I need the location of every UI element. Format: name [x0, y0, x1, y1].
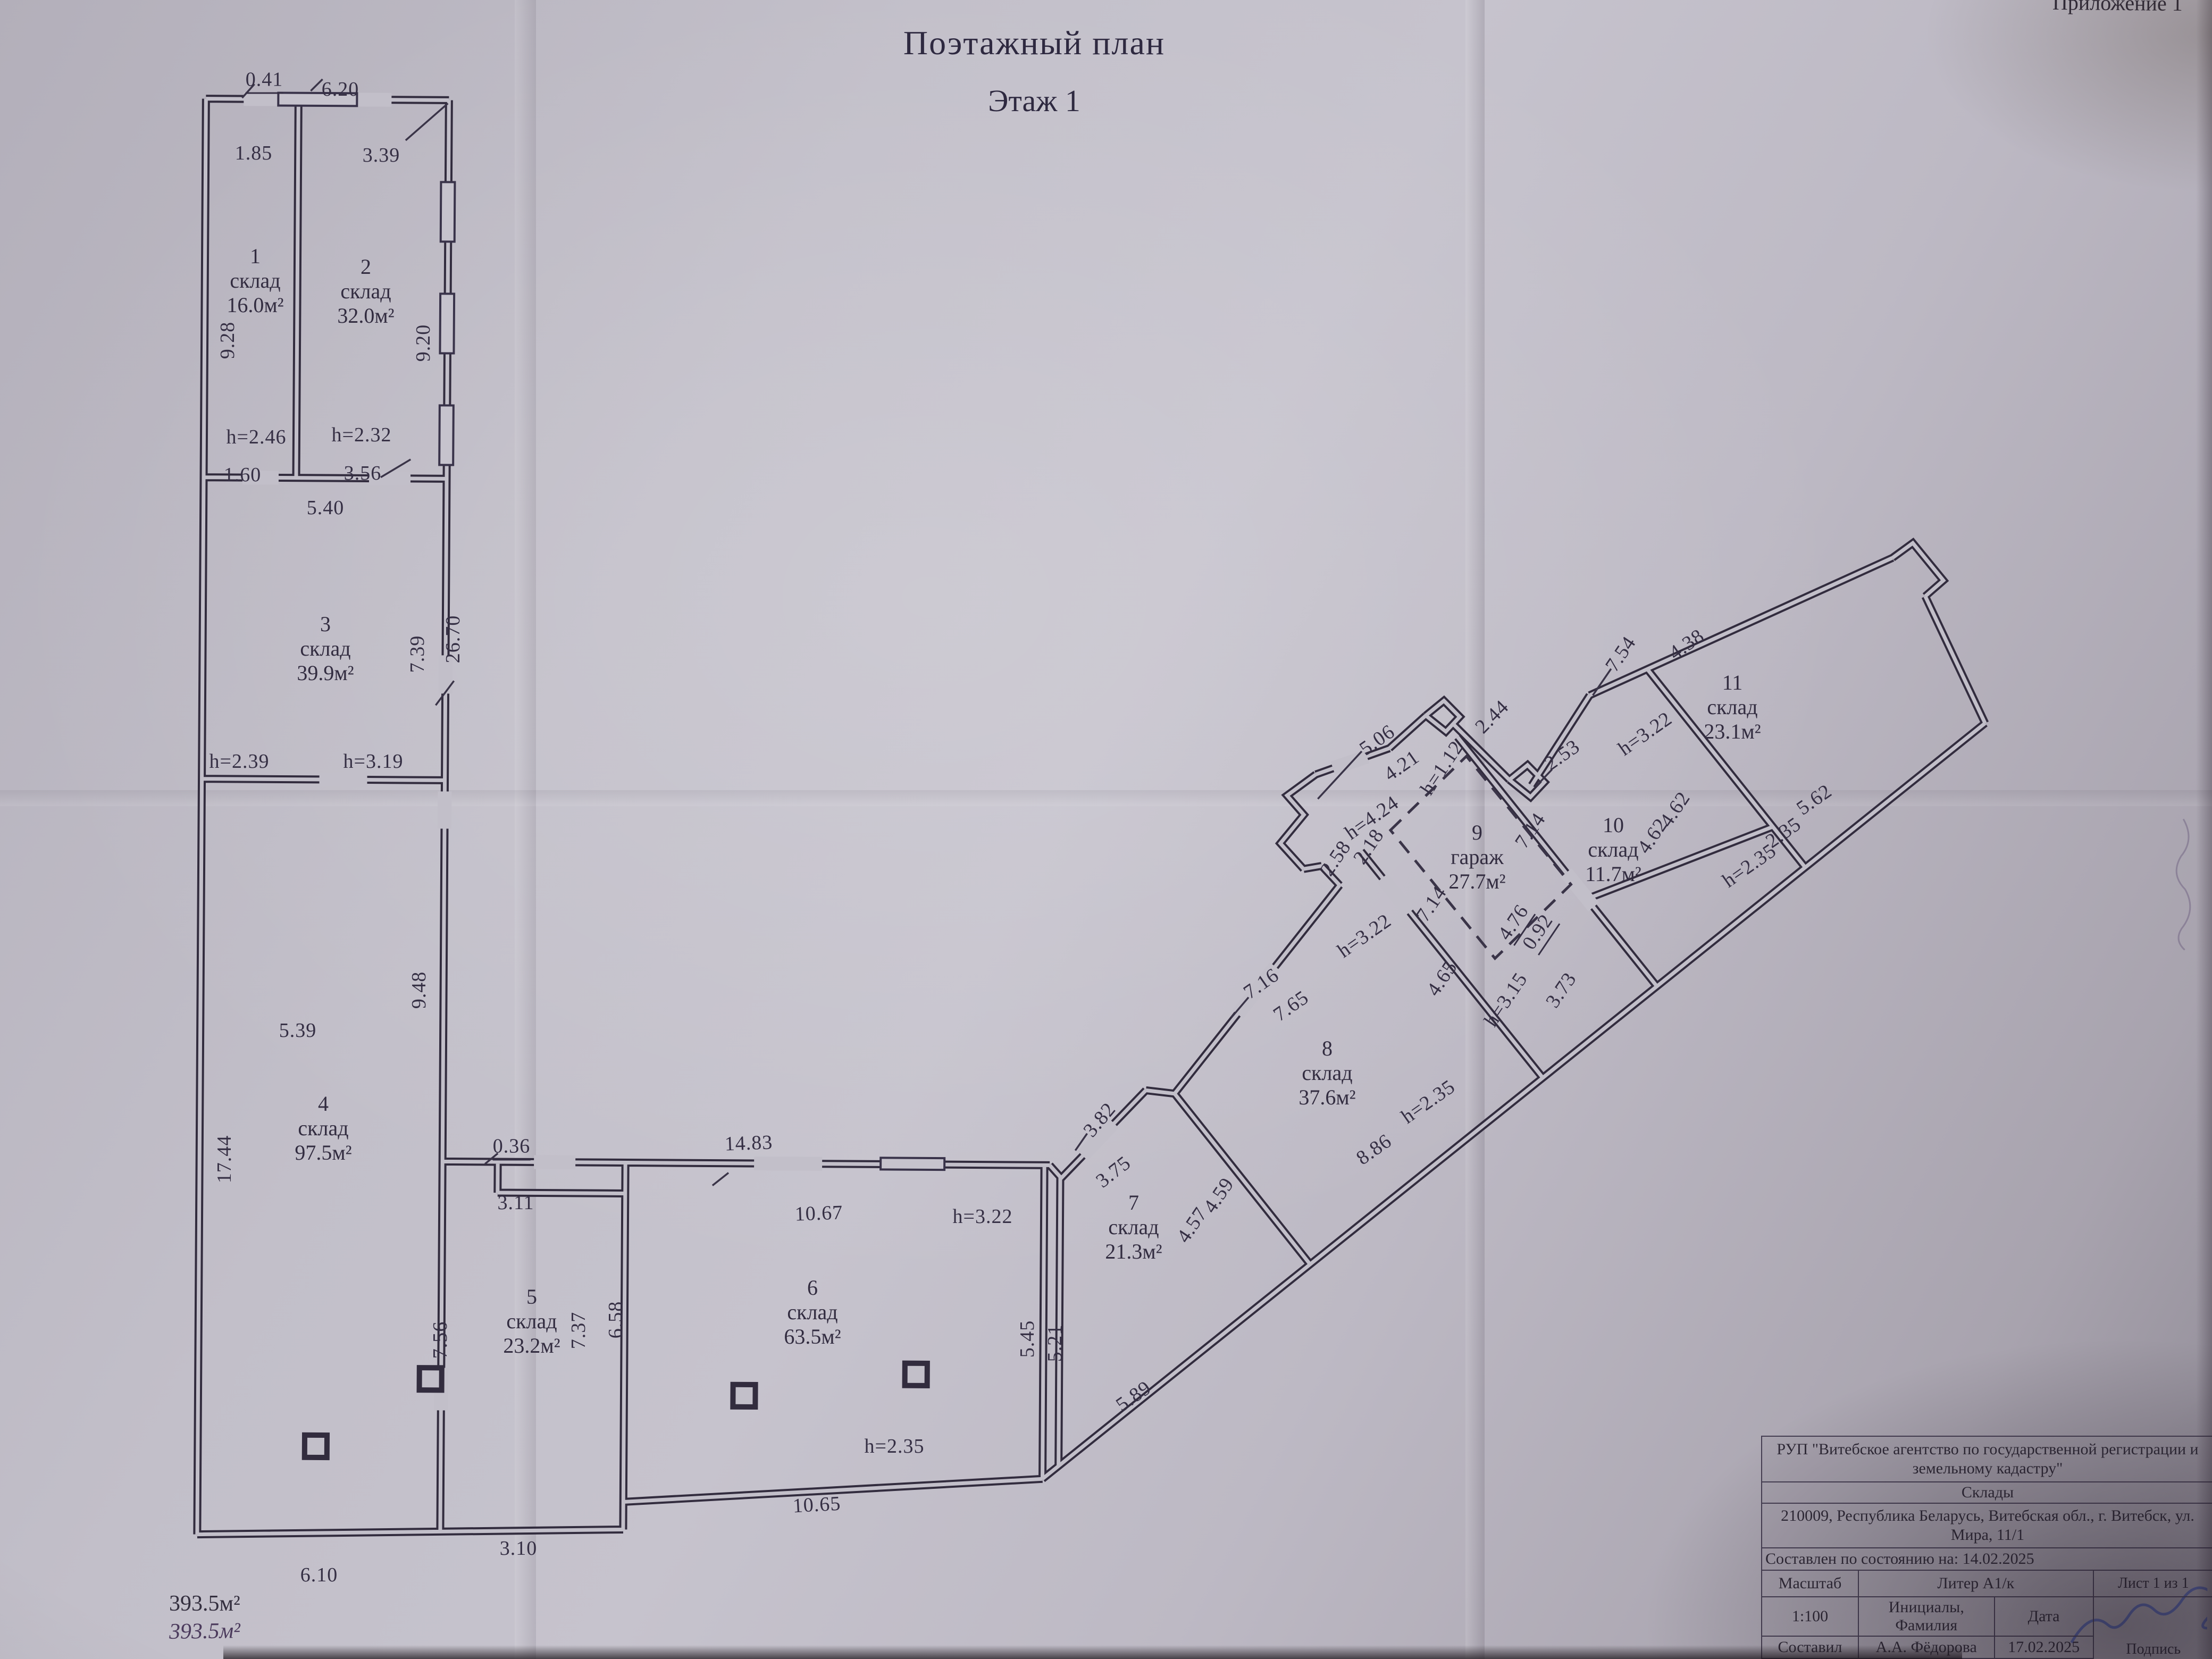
table-cell-address: 210009, Республика Беларусь, Витебская о… [1762, 1503, 2212, 1548]
total-area-block: 393.5м² 393.5м² [169, 1590, 240, 1645]
desk-edge-shadow [223, 1645, 1962, 1659]
column-icon [305, 1435, 327, 1457]
room-label: 2склад32.0м² [337, 255, 394, 328]
table-cell-liter: Литер А1/к [1858, 1570, 2093, 1597]
room-label-line: 7 [1105, 1191, 1162, 1215]
walls-layer [197, 99, 1989, 1545]
room-label-line: 23.1м² [1704, 719, 1761, 744]
dim-label: 9.28 [216, 322, 239, 359]
room-label: 4склад97.5м² [295, 1092, 351, 1165]
room-label-line: 37.6м² [1298, 1085, 1355, 1110]
dim-label: h=2.32 [332, 423, 392, 447]
room-label-line: 6 [784, 1276, 841, 1300]
room-label-line: 2 [337, 255, 394, 279]
room-label: 11склад23.1м² [1704, 671, 1761, 744]
dim-label: 1.85 [235, 141, 273, 165]
room-label-line: склад [1298, 1061, 1355, 1085]
room-label-line: 9 [1448, 820, 1505, 845]
room-label-line: склад [297, 636, 354, 661]
dim-label: 26.70 [441, 615, 465, 664]
total-area-printed: 393.5м² [169, 1590, 240, 1618]
room-label: 5склад23.2м² [503, 1285, 560, 1358]
room-label-line: 23.2м² [503, 1334, 560, 1358]
window-icon [441, 182, 455, 241]
dim-label: 3.11 [497, 1191, 534, 1214]
room-label-line: 27.7м² [1448, 869, 1505, 894]
room-label-line: 63.5м² [784, 1325, 841, 1349]
dim-label: 5.40 [307, 496, 345, 520]
room-label: 8склад37.6м² [1298, 1036, 1355, 1110]
dim-label: 10.65 [792, 1492, 842, 1518]
dim-label: 17.44 [213, 1135, 236, 1184]
room-label-line: склад [227, 269, 283, 293]
column-icon [420, 1368, 442, 1390]
table-cell-signature: Подпись проверяющего [2093, 1597, 2212, 1659]
dim-label: 7.37 [567, 1312, 590, 1350]
dim-label: h=3.22 [953, 1205, 1013, 1228]
room-label: 1склад16.0м² [227, 244, 283, 317]
table-cell-object: Склады [1762, 1482, 2212, 1503]
dim-label: 6.58 [604, 1301, 627, 1339]
dim-label: h=2.39 [210, 750, 270, 773]
room-label-line: склад [1105, 1215, 1162, 1239]
floorplan-photo: Приложение 1 Поэтажный план Этаж 1 [0, 0, 2212, 1659]
dim-label: 5.45 [1016, 1320, 1039, 1358]
dim-label: h=2.46 [227, 425, 287, 449]
room-label: 7склад21.3м² [1105, 1191, 1162, 1264]
room-label-line: 39.9м² [297, 661, 354, 685]
total-area-handwritten: 393.5м² [169, 1617, 241, 1646]
table-cell-initials-header: Инициалы, Фамилия [1858, 1597, 1995, 1636]
dim-label: 7.56 [429, 1321, 452, 1359]
room-label: 9гараж27.7м² [1448, 820, 1505, 894]
columns-layer [305, 1360, 927, 1461]
dim-label: 6.20 [322, 78, 359, 101]
dim-label: 5.39 [279, 1019, 317, 1042]
room-label-line: гараж [1448, 845, 1505, 869]
window-icon [439, 405, 454, 465]
dim-label: 3.39 [363, 144, 400, 167]
dim-label: 7.39 [406, 635, 429, 673]
dim-label: h=2.35 [865, 1435, 925, 1458]
room-label-line: 8 [1298, 1036, 1355, 1061]
room-label-line: 5 [503, 1285, 560, 1309]
title-block-table: РУП "Витебское агентство по государствен… [1761, 1436, 2212, 1659]
table-cell-scale-label: Масштаб [1762, 1570, 1858, 1597]
room-label-line: 97.5м² [295, 1141, 351, 1165]
table-cell-sheet: Лист 1 из 1 [2093, 1570, 2212, 1597]
room-label: 6склад63.5м² [784, 1276, 841, 1349]
dim-label: 6.10 [300, 1563, 338, 1587]
room-label-line: склад [503, 1309, 560, 1334]
dim-label: 5.21 [1043, 1325, 1067, 1362]
table-cell-date-header: Дата [1995, 1597, 2093, 1636]
column-icon [733, 1385, 755, 1407]
table-row-cell: 17.02.2025 [1995, 1636, 2093, 1658]
room-label-line: склад [1585, 837, 1641, 862]
table-cell-compiled-date: Составлен по состоянию на: 14.02.2025 [1762, 1548, 2212, 1570]
dim-label: 14.83 [724, 1130, 773, 1155]
dim-label: 3.56 [344, 462, 382, 485]
dim-label: h=3.19 [343, 750, 404, 773]
room-label-line: 11.7м² [1585, 862, 1641, 886]
room-label-line: склад [337, 279, 394, 304]
window-icon [881, 1158, 944, 1170]
paper-right-edge-shadow [2196, 0, 2212, 1659]
room-label: 3склад39.9м² [297, 612, 354, 685]
margin-handwriting-icon [2176, 819, 2191, 950]
dim-label: 10.67 [794, 1201, 843, 1226]
room-label-line: 10 [1585, 813, 1641, 837]
room-label-line: склад [784, 1300, 841, 1325]
room-label: 10склад11.7м² [1585, 813, 1641, 886]
room-label-line: 1 [227, 244, 283, 269]
dim-label: 1.60 [224, 463, 262, 487]
dim-label: 9.48 [407, 971, 431, 1009]
dim-label: 0.41 [246, 68, 283, 94]
dim-label: 3.10 [500, 1537, 538, 1560]
room-label-line: 4 [295, 1092, 351, 1116]
room-label-line: 11 [1704, 671, 1761, 695]
room-label-line: 32.0м² [337, 304, 394, 328]
room-label-line: склад [1704, 695, 1761, 719]
room-label-line: 16.0м² [227, 293, 283, 317]
room-label-line: 3 [297, 612, 354, 636]
window-icon [440, 294, 454, 353]
dim-label: 9.20 [412, 324, 435, 362]
table-cell-scale-value: 1:100 [1762, 1597, 1858, 1636]
floorplan-drawing [0, 0, 2212, 1659]
table-cell-organization: РУП "Витебское агентство по государствен… [1762, 1436, 2212, 1482]
column-icon [905, 1363, 927, 1386]
room-label-line: склад [295, 1116, 351, 1141]
dim-label: 0.36 [493, 1135, 531, 1161]
room-label-line: 21.3м² [1105, 1239, 1162, 1264]
